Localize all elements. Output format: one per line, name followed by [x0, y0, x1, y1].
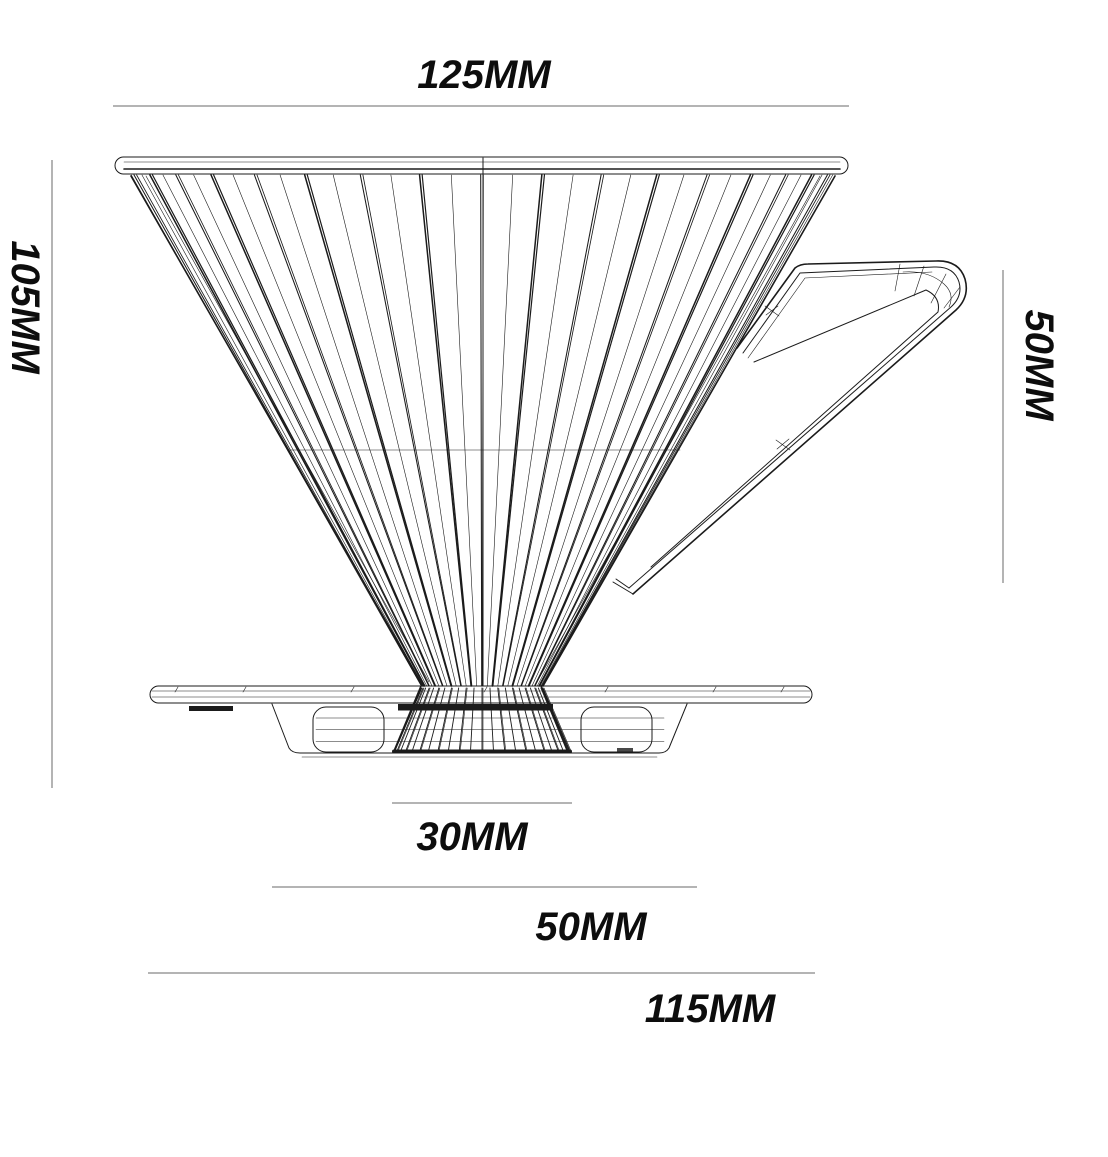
dim-label-base-inner-width: 30MM	[416, 815, 529, 859]
rim-band	[115, 157, 848, 174]
dim-label-base-mid-width: 50MM	[535, 905, 648, 949]
cone-ribs	[131, 175, 832, 686]
emboss-mark-right	[617, 748, 633, 752]
dripper-technical-drawing: 125MM 105MM 50MM 30MM 50MM 115MM	[0, 0, 1108, 1157]
base-plate	[150, 686, 812, 703]
drawing-canvas: 125MM 105MM 50MM 30MM 50MM 115MM	[0, 0, 1108, 1157]
dim-label-top-width: 125MM	[417, 53, 552, 97]
handle-top-inner-line	[748, 272, 932, 358]
dim-label-handle-height: 50MM	[1017, 309, 1061, 422]
dripper-outline	[115, 157, 966, 757]
waist-dark-band	[398, 704, 553, 711]
base-skirt	[272, 704, 687, 753]
cone-wall-left-inner	[146, 176, 429, 682]
dim-label-base-outer-width: 115MM	[645, 987, 777, 1031]
skirt-contour-lines	[316, 718, 664, 742]
handle-cutout-path	[651, 290, 939, 567]
emboss-mark-left	[189, 706, 233, 711]
cone-wall-right	[543, 176, 835, 686]
handle	[613, 261, 966, 594]
handle-curl-band	[903, 272, 951, 307]
handle-section-mark-lower	[776, 439, 790, 450]
dim-label-total-height: 105MM	[3, 240, 47, 375]
dimension-annotations: 125MM 105MM 50MM 30MM 50MM 115MM	[3, 53, 1061, 1031]
handle-section-mark-upper	[765, 306, 779, 316]
